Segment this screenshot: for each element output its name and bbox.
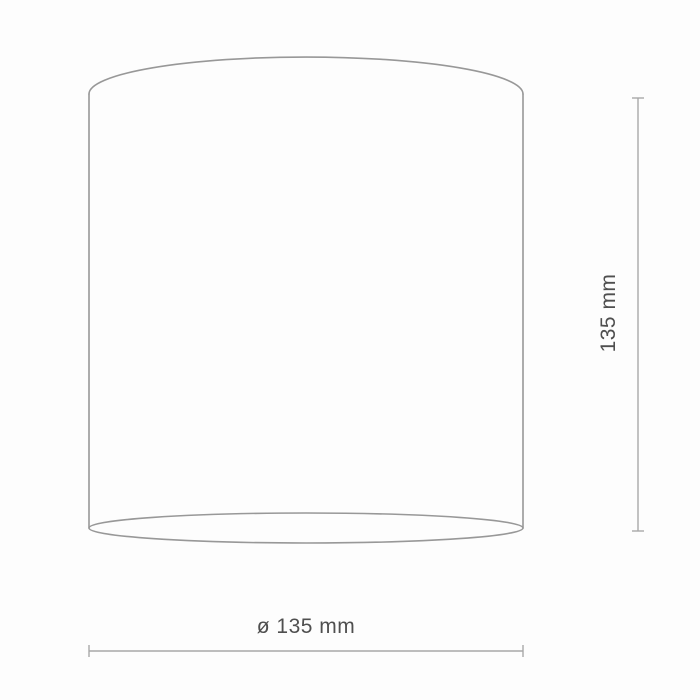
cylinder-bottom-ellipse — [89, 513, 523, 543]
diameter-dimension-line — [89, 645, 523, 657]
cylinder-outline — [89, 57, 523, 543]
height-dimension-label: 135 mm — [597, 274, 621, 353]
height-dimension-line — [632, 98, 644, 531]
cylinder-top-arc — [89, 57, 523, 94]
diameter-dimension-label: ø 135 mm — [257, 615, 356, 639]
cylinder-drawing — [0, 0, 700, 700]
product-dimension-diagram: 135 mm ø 135 mm — [0, 0, 700, 700]
